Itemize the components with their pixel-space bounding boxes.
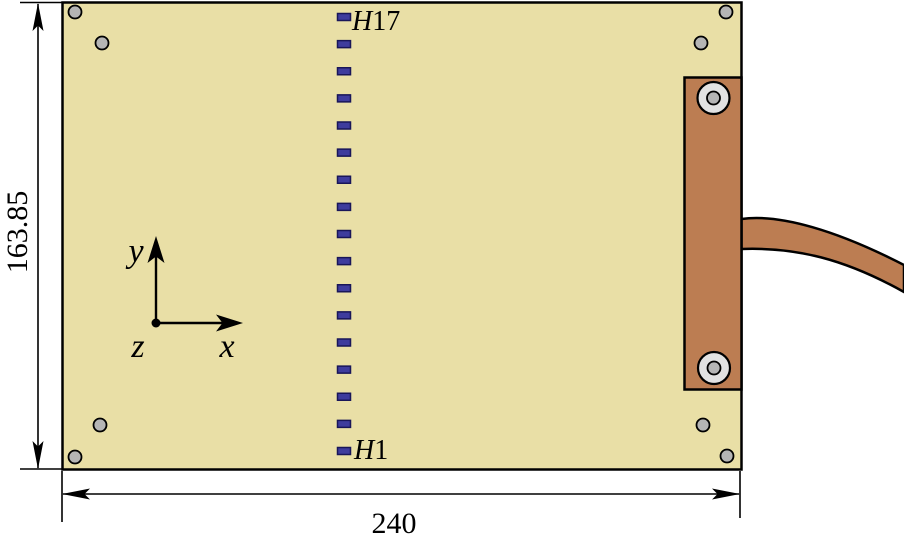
corner-screw: [69, 6, 82, 19]
hole-pad: [338, 258, 351, 265]
hole-pad: [338, 393, 351, 400]
corner-screw: [720, 6, 733, 19]
strip-screw-core: [708, 362, 721, 375]
hole-pad: [338, 366, 351, 373]
hole-pad: [338, 312, 351, 319]
height-dimension: 163.85: [1, 3, 63, 470]
hole-pad: [338, 122, 351, 129]
corner-screw: [697, 419, 710, 432]
corner-screw: [96, 37, 109, 50]
technical-drawing: H17 H1 y x z 163.85 240: [0, 0, 904, 538]
hole-pad: [338, 14, 351, 21]
y-axis-label: y: [125, 233, 144, 270]
hole-pad: [338, 203, 351, 210]
width-dimension: 240: [62, 471, 740, 538]
corner-screw: [695, 37, 708, 50]
hole-pad: [338, 448, 351, 455]
corner-screw: [69, 451, 82, 464]
copper-feed-strip: [685, 78, 742, 390]
hole-pad: [338, 339, 351, 346]
hole-pad: [338, 285, 351, 292]
figure-canvas: H17 H1 y x z 163.85 240: [0, 0, 904, 538]
pcb-board: [63, 3, 742, 470]
strip-screw-core: [707, 92, 720, 105]
feed-cable: [742, 218, 904, 292]
x-axis-label: x: [218, 328, 234, 365]
hole-label-bottom: H1: [353, 435, 388, 466]
width-dimension-label: 240: [372, 507, 417, 538]
hole-pad: [338, 68, 351, 75]
hole-label-top: H17: [351, 6, 400, 37]
hole-pad: [338, 41, 351, 48]
hole-pad: [338, 231, 351, 238]
origin-dot: [152, 319, 161, 328]
z-axis-label: z: [130, 328, 144, 365]
hole-pad: [338, 176, 351, 183]
hole-pad: [338, 95, 351, 102]
hole-pad: [338, 149, 351, 156]
corner-screw: [94, 419, 107, 432]
corner-screw: [721, 450, 734, 463]
height-dimension-label: 163.85: [1, 191, 34, 274]
hole-pad: [338, 420, 351, 427]
